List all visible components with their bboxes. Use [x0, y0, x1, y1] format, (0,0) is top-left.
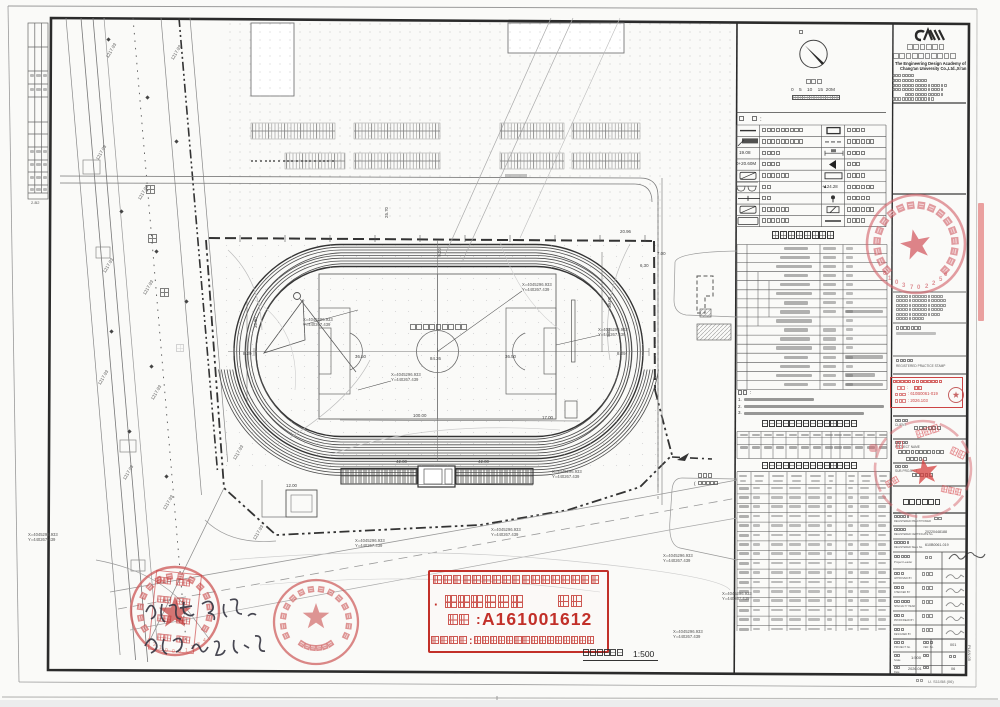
svg-text:1: 1 [888, 276, 892, 282]
svg-text:5: 5 [939, 277, 943, 283]
svg-text:7: 7 [910, 285, 914, 291]
svg-text:0: 0 [895, 280, 899, 286]
svg-text:0: 0 [917, 285, 921, 291]
svg-text:2: 2 [932, 281, 936, 287]
svg-text:2: 2 [925, 284, 929, 290]
svg-text:3: 3 [902, 283, 906, 289]
